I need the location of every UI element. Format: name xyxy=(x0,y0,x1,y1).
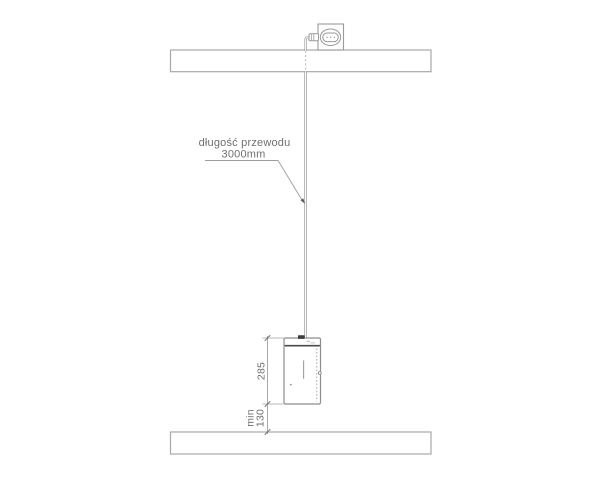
plug-pin-dot xyxy=(334,37,335,38)
technical-drawing: długość przewodu 3000mm 285 min 130 xyxy=(0,0,600,480)
cable-length-label-line1: długość przewodu xyxy=(199,137,291,149)
lamp-side-knob xyxy=(318,372,321,375)
dimension-label-285: 285 xyxy=(256,362,268,380)
lamp-dot-detail xyxy=(290,384,292,386)
pendant-lamp xyxy=(284,335,321,404)
plug-pin-dot xyxy=(330,37,331,38)
plug-pin-dot xyxy=(326,37,327,38)
dimension-label-130: 130 xyxy=(255,409,267,427)
faint-marking xyxy=(311,342,315,343)
ceiling-beam xyxy=(171,50,432,72)
cord-grip xyxy=(298,335,305,339)
floor-beam xyxy=(171,432,432,454)
power-socket xyxy=(309,24,344,50)
leader-line xyxy=(205,161,303,203)
pendant-lamp-installation-diagram: długość przewodu 3000mm 285 min 130 xyxy=(0,0,600,480)
faint-marking xyxy=(307,341,310,342)
cable-length-label-line2: 3000mm xyxy=(222,149,266,161)
lamp-body xyxy=(284,338,321,404)
